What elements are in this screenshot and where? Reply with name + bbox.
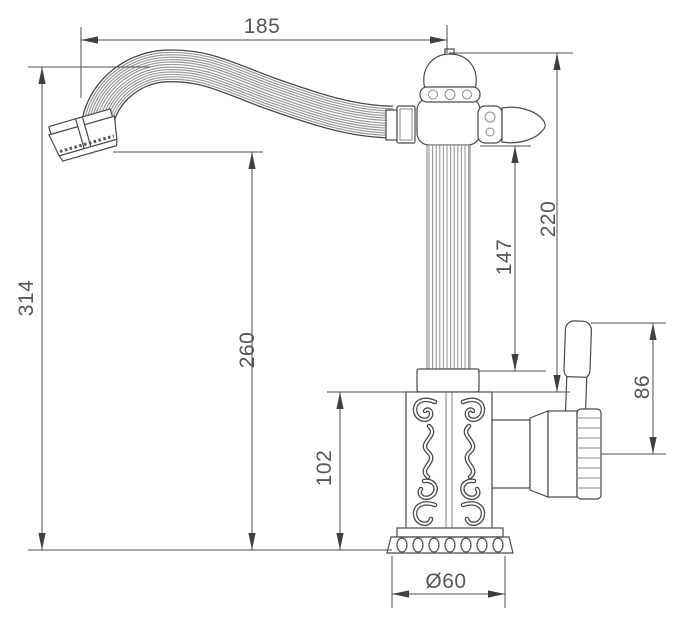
spout-connector-rings xyxy=(386,106,415,143)
top-finial xyxy=(420,49,480,102)
dim-label-overall-height: 314 xyxy=(15,280,38,317)
fluted-column xyxy=(427,145,470,370)
dim-label-base-diameter: Ø60 xyxy=(425,570,466,593)
knurled-collar xyxy=(417,369,479,392)
spout-outlet xyxy=(47,108,123,162)
side-finial-handle xyxy=(478,106,545,143)
side-valve xyxy=(492,321,601,499)
dim-label-spout-to-collar: 147 xyxy=(493,239,516,276)
technical-drawing-canvas: 185 314 260 147 220 102 86 Ø60 xyxy=(0,0,684,620)
dim-label-top-to-body-shoulder: 220 xyxy=(537,201,560,238)
body-block xyxy=(417,98,480,145)
handle-rod xyxy=(562,321,591,418)
dim-label-base-body-height: 102 xyxy=(313,450,336,487)
dim-handle-length xyxy=(591,323,666,454)
ribbed-knob xyxy=(577,409,601,499)
dim-label-spout-reach: 185 xyxy=(244,15,281,38)
faucet-dimension-drawing: 185 314 260 147 220 102 86 Ø60 xyxy=(0,0,684,620)
dim-label-handle-length: 86 xyxy=(631,375,654,399)
dim-label-spout-outlet-height: 260 xyxy=(236,332,259,369)
base-body xyxy=(406,392,492,532)
crown-ornament xyxy=(548,411,577,497)
base-flange xyxy=(387,528,513,553)
spout-tube xyxy=(97,66,393,128)
